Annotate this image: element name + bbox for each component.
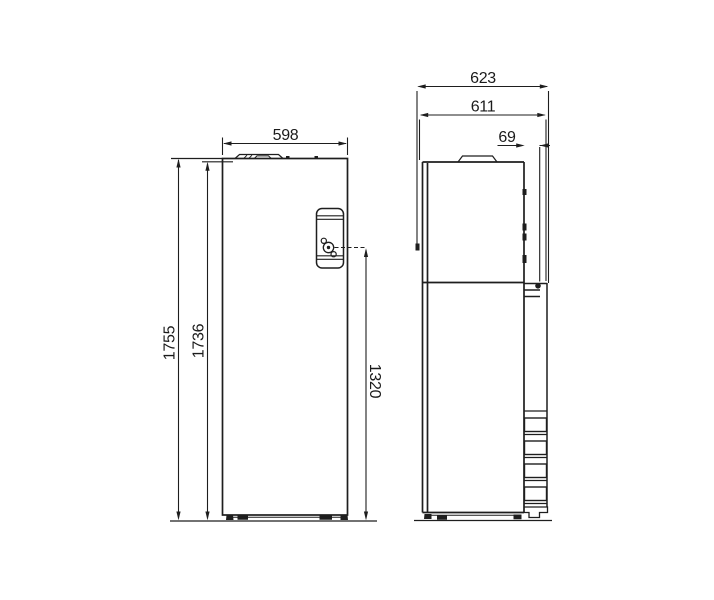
side-body-outline [423,162,525,513]
dim-1320-arrow-bottom [364,512,368,521]
dim-1755-arrow-top [176,159,180,168]
dim-1736-label: 1736 [191,323,208,358]
dim-panel-height: 1320 [364,248,383,520]
dim-623-lines [417,87,549,284]
dim-623-arrow-left [417,84,426,88]
rear-port-box-1 [525,418,547,432]
dim-611-label: 611 [471,99,496,116]
dim-598-label: 598 [273,127,299,144]
dim-623-label: 623 [470,70,496,87]
drawing-canvas: 598 1755 1736 1320 623 611 69 [0,0,714,600]
dim-front-width: 598 [223,127,348,155]
dim-611-arrow-left [420,113,429,117]
dim-611-arrow-right [537,113,546,117]
rear-port-box-4 [525,487,547,501]
dim-598-arrow-left [223,141,232,145]
rear-port-box-3 [525,464,547,478]
front-top-tick-2 [315,156,319,158]
dim-front-total-height: 1755 [162,159,181,521]
dim-611-lines [420,115,547,281]
dim-1736-arrow-bottom [205,512,209,521]
dim-69-end-dot [535,283,541,289]
front-top-tick-1 [286,156,290,158]
dim-69-arrow-left [516,143,525,147]
dim-1755-label: 1755 [162,325,179,360]
dim-69-arrow-right [540,143,549,147]
side-view [414,156,552,521]
dimension-drawing: 598 1755 1736 1320 623 611 69 [0,0,714,600]
dim-623-arrow-right [540,84,549,88]
dim-598-arrow-right [339,141,348,145]
dim-1736-arrow-top [205,162,209,171]
dim-1320-label: 1320 [366,364,383,399]
rear-bottom-bracket [524,507,548,518]
dim-69-label: 69 [498,129,516,146]
dim-front-body-height: 1736 [191,162,210,520]
dim-1755-arrow-bottom [176,512,180,521]
dial-center-dot [327,246,330,249]
rear-port-box-2 [525,441,547,455]
side-top-vent [458,156,497,162]
dim-side-body-depth: 611 [420,99,547,282]
dim-1320-arrow-top [364,248,368,257]
